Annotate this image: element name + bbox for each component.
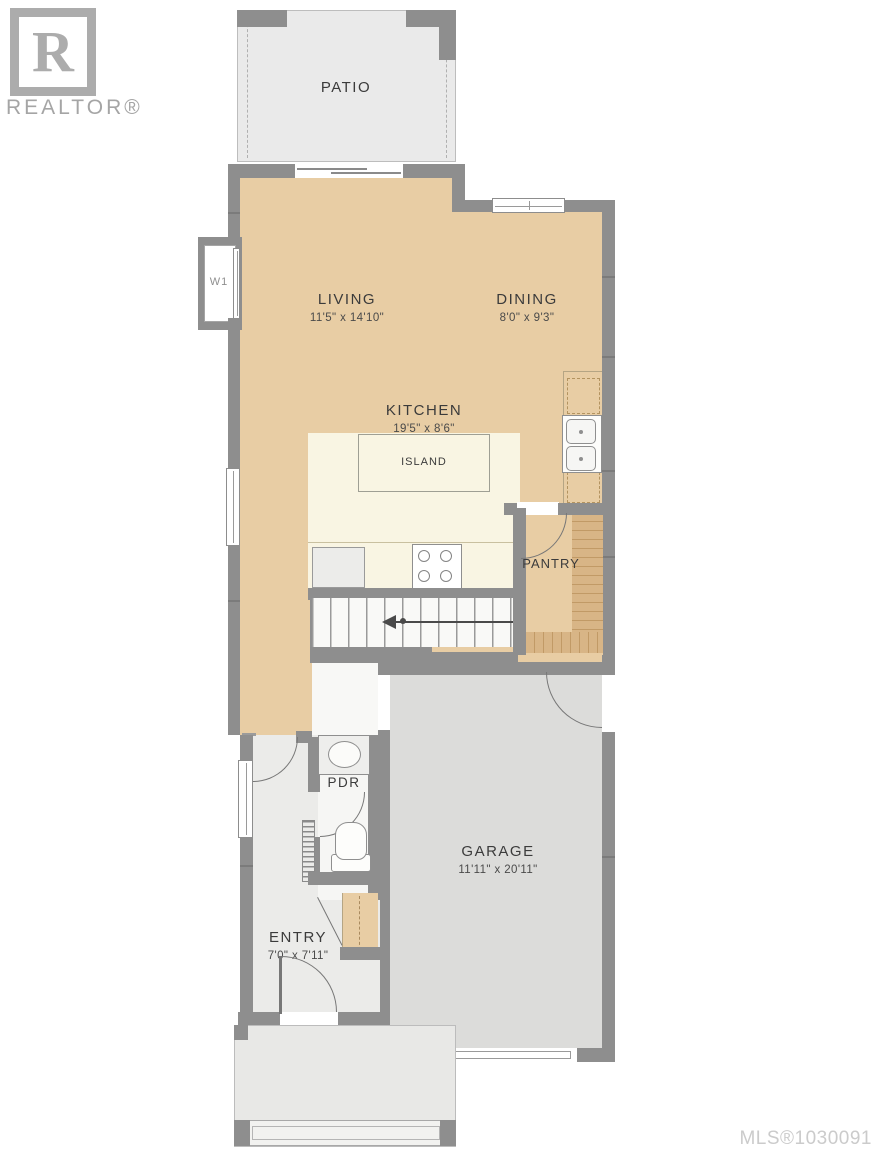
wall-seam — [602, 470, 615, 472]
wall-seam — [602, 556, 615, 558]
wall-segment — [602, 200, 615, 668]
cabinet-dashed — [567, 472, 600, 503]
dining-window — [492, 198, 565, 213]
floor-plan: R REALTOR® PATIO W1 — [0, 0, 880, 1168]
wall-segment — [440, 1120, 456, 1146]
realtor-logo-inner: R — [19, 17, 87, 87]
stairs-direction-arrow-icon — [382, 615, 396, 629]
wall-segment — [310, 647, 432, 663]
pdr-name: PDR — [327, 775, 360, 790]
wall-seam — [602, 356, 615, 358]
kitchen-name: KITCHEN — [386, 402, 462, 419]
window-mullion — [237, 251, 238, 316]
wall-seam — [602, 856, 615, 858]
window-tag-text: W1 — [210, 276, 229, 288]
window-mullion — [233, 471, 234, 543]
wall-segment — [228, 318, 240, 470]
counter-edge-line — [308, 542, 520, 543]
stove-burner — [440, 570, 452, 582]
sliding-door-panel — [331, 172, 401, 174]
entry-name: ENTRY — [269, 929, 327, 946]
stairs-direction-line — [394, 621, 514, 623]
garage-entry-door-opening — [378, 675, 390, 730]
mls-number: MLS®1030091 — [640, 1128, 872, 1150]
patio-label: PATIO — [286, 80, 406, 96]
dining-dims: 8'0" x 9'3" — [457, 310, 597, 326]
stove-burner — [440, 550, 452, 562]
stair-landing-floor — [312, 663, 378, 735]
wall-segment — [338, 1012, 382, 1025]
cabinet-dashed — [567, 378, 600, 414]
wall-segment — [228, 545, 240, 735]
wall-segment — [238, 1012, 280, 1025]
sink-drain — [579, 457, 583, 461]
wall-segment — [460, 200, 494, 212]
window-tag: W1 — [202, 276, 236, 288]
porch-step-inner — [252, 1126, 440, 1140]
island-label: ISLAND — [358, 456, 490, 468]
living-label: LIVING 11'5" x 14'10" — [277, 292, 417, 326]
sink-basin — [566, 446, 596, 471]
wall-segment — [602, 732, 615, 1062]
pantry-label: PANTRY — [512, 556, 590, 572]
wall-segment — [234, 1120, 250, 1146]
dining-name: DINING — [496, 291, 558, 308]
wall-seam — [228, 600, 240, 602]
garage-side-door-opening — [601, 666, 616, 732]
island-name: ISLAND — [401, 456, 447, 468]
pantry-shelf — [525, 632, 603, 653]
wall-segment — [439, 10, 456, 60]
dining-label: DINING 8'0" x 9'3" — [457, 292, 597, 326]
kitchen-label: KITCHEN 19'5" x 8'6" — [354, 403, 494, 437]
wall-segment — [240, 735, 253, 762]
window-mullion — [246, 763, 247, 835]
wall-segment — [237, 164, 295, 178]
sink-basin — [566, 419, 596, 444]
wall-segment — [237, 10, 287, 27]
stove-burner — [418, 570, 430, 582]
kitchen-dims: 19'5" x 8'6" — [354, 421, 494, 437]
sliding-door-panel — [297, 168, 367, 170]
stairs-direction-dot — [400, 618, 406, 624]
realtor-logo-letter: R — [32, 23, 74, 81]
wall-segment — [234, 1025, 248, 1040]
realtor-logo-icon: R — [10, 8, 96, 96]
wall-segment — [577, 1048, 615, 1062]
stove-burner — [418, 550, 430, 562]
wall-segment — [228, 164, 240, 247]
patio-edge-dashed-left — [247, 14, 248, 158]
pdr-label: PDR — [314, 775, 374, 791]
realtor-wordmark: REALTOR® — [6, 96, 146, 120]
hall-window — [238, 760, 253, 838]
pantry-name: PANTRY — [522, 556, 580, 571]
garage-label: GARAGE 11'11" x 20'11" — [428, 844, 568, 878]
sink-drain — [579, 430, 583, 434]
living-window — [226, 468, 240, 546]
living-name: LIVING — [318, 291, 376, 308]
garage-name: GARAGE — [461, 843, 534, 860]
living-dims: 11'5" x 14'10" — [277, 310, 417, 326]
patio-name: PATIO — [321, 79, 371, 96]
toilet-bowl — [335, 822, 367, 860]
oval-sink — [328, 741, 361, 768]
wall-segment — [308, 872, 380, 885]
patio-sliding-door — [295, 164, 403, 178]
window-mullion — [529, 201, 530, 210]
front-door-opening — [280, 1012, 338, 1025]
dishwasher — [312, 547, 365, 588]
garage-dims: 11'11" x 20'11" — [428, 862, 568, 878]
wall-seam — [602, 276, 615, 278]
wall-seam — [240, 865, 253, 867]
closet-rod-dashed — [359, 896, 360, 950]
wall-seam — [228, 212, 240, 214]
